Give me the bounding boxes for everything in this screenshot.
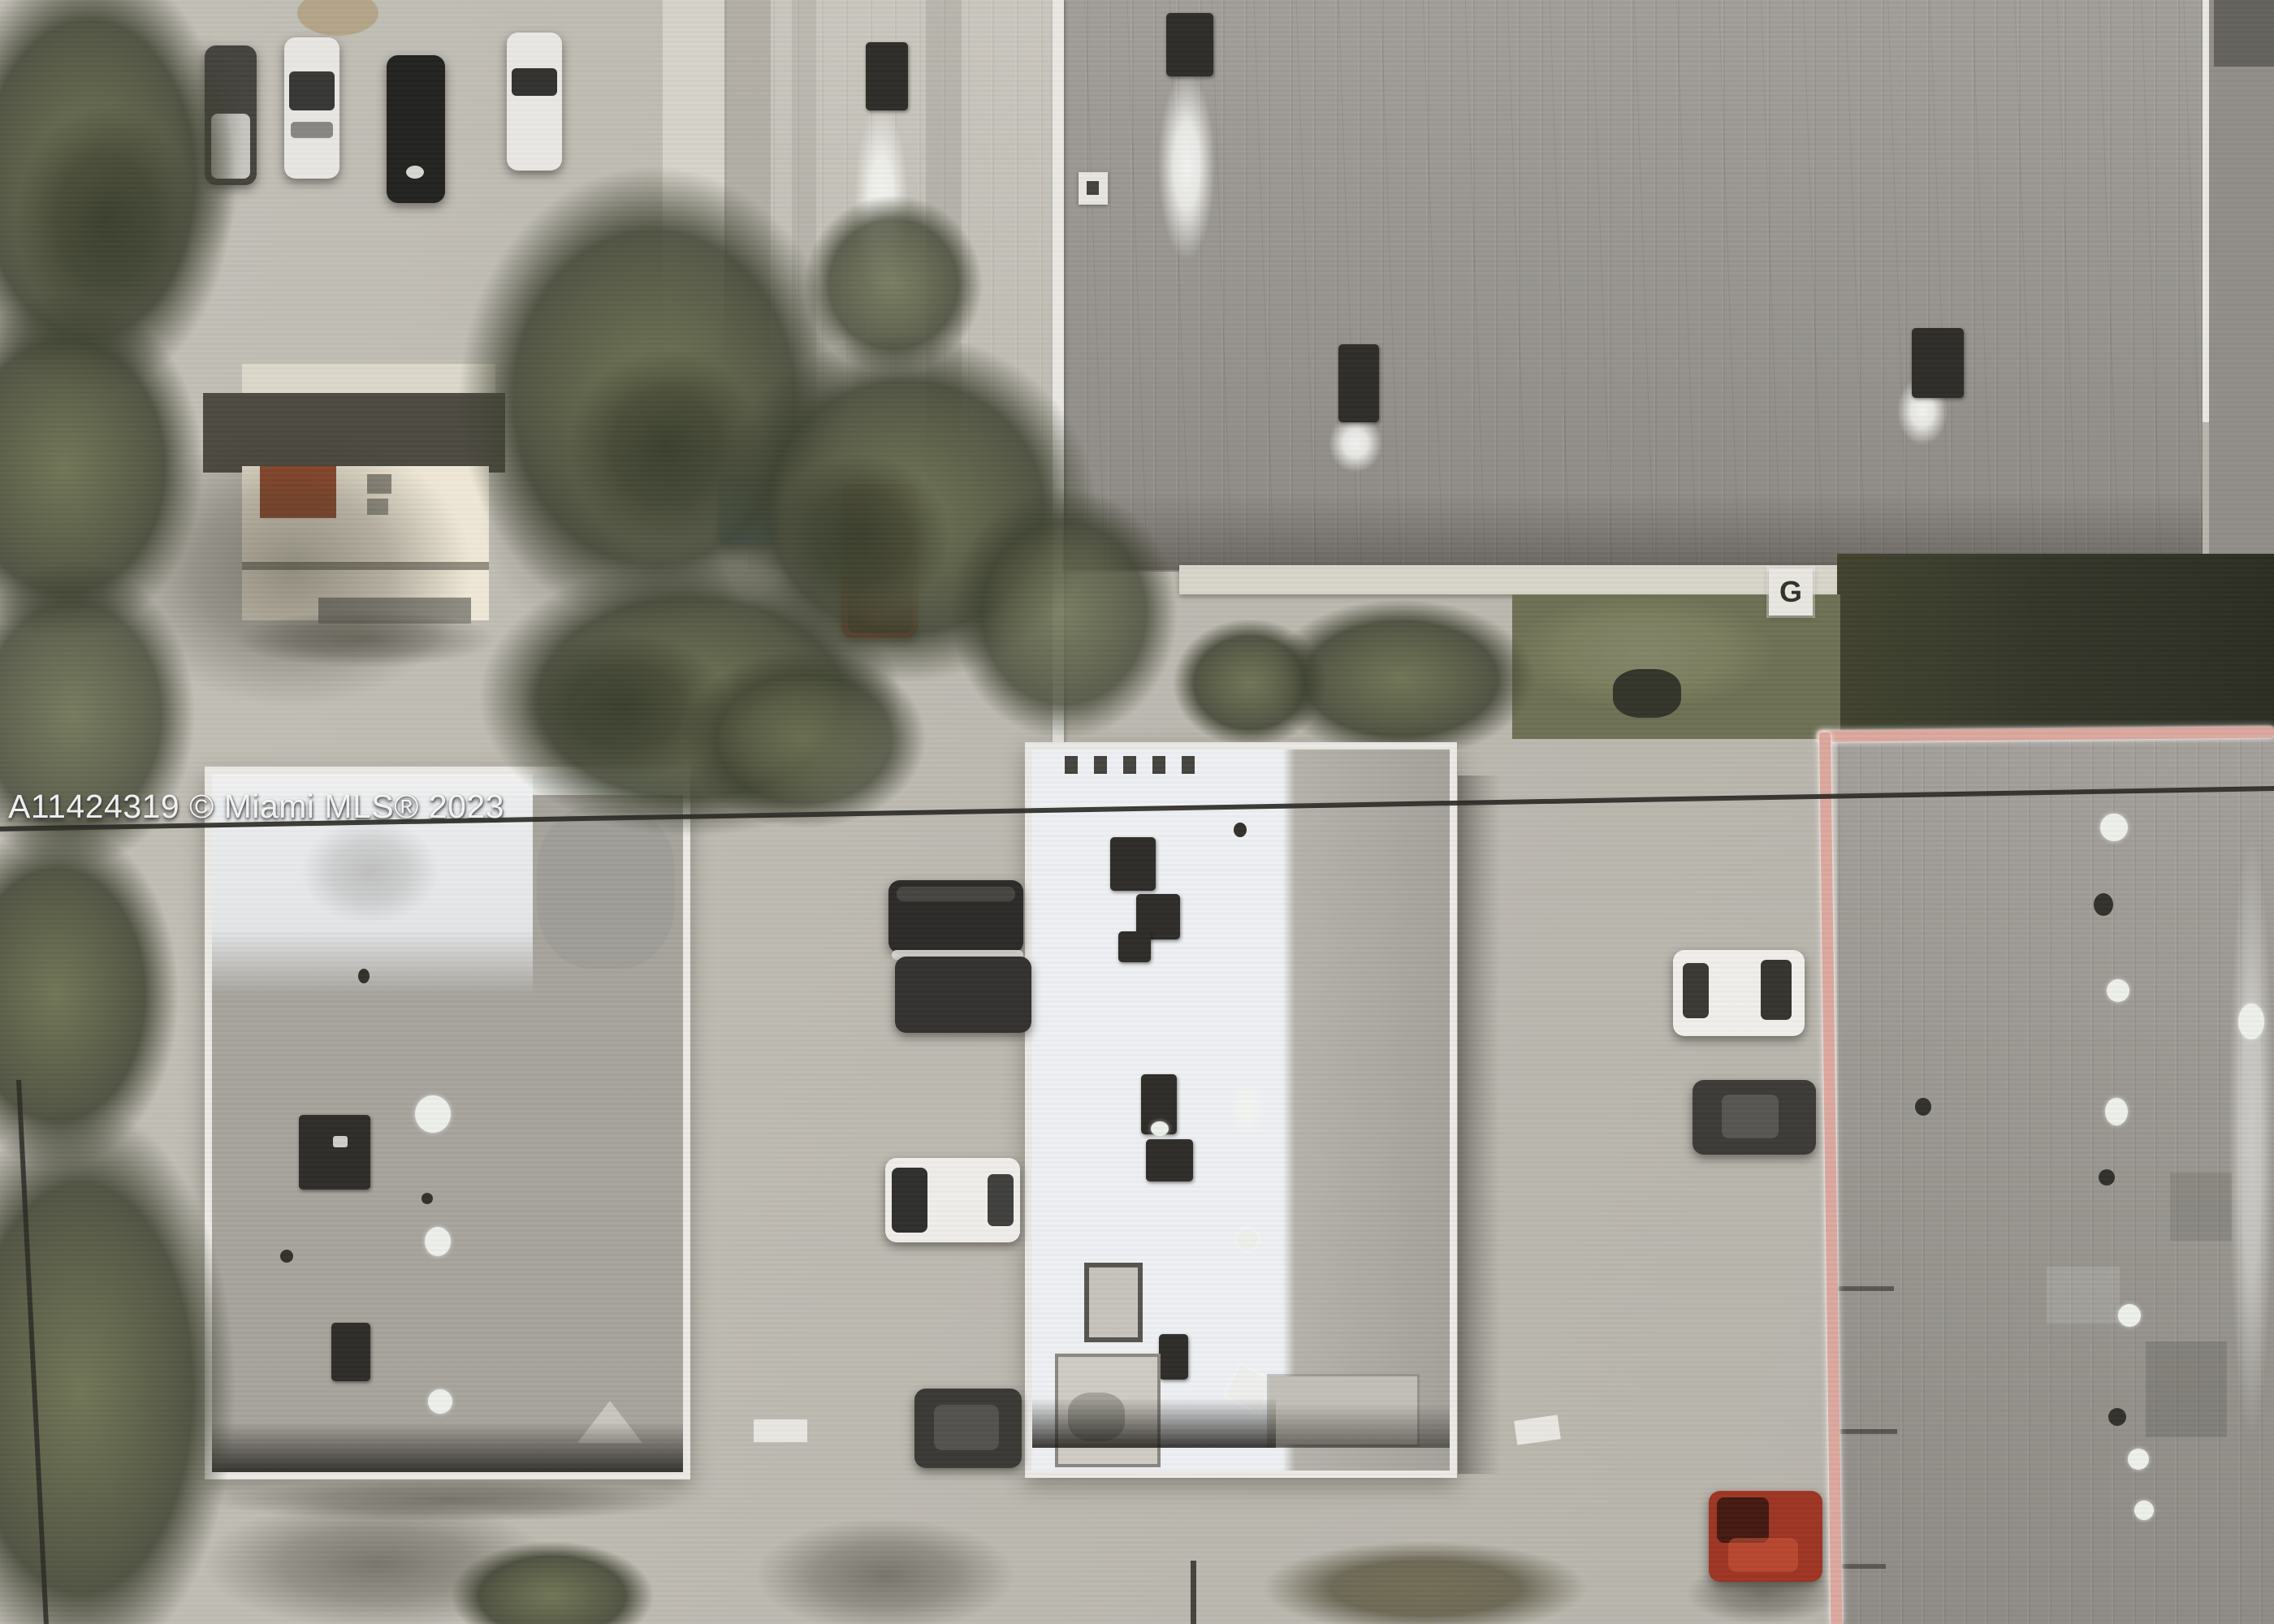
roof-vent-white (415, 1095, 451, 1133)
roof-vent-dark (1234, 823, 1247, 837)
roof-vent-white (428, 1389, 452, 1414)
vent-streak (1230, 1081, 1265, 1138)
parked-car-black (387, 55, 445, 203)
wall-sign-G: G (1769, 568, 1813, 615)
right-dark-car (1693, 1080, 1816, 1155)
roof-vent (1338, 344, 1379, 422)
ac-glint (333, 1136, 348, 1147)
car-body-sheen (1728, 1538, 1798, 1572)
roof-joint-tick (1837, 1564, 1886, 1569)
car-headlight-glint (406, 166, 424, 179)
roof-light-strip (2229, 836, 2274, 1437)
tree-shadow (755, 1518, 1015, 1624)
roof-edge-shadow (212, 1422, 683, 1472)
roof-patch-light (2047, 1267, 2120, 1324)
roof-vent-white (2134, 1501, 2154, 1520)
roof-vent-dark (1915, 1098, 1931, 1116)
roof-vent-white (2238, 1004, 2264, 1039)
building-middle (1025, 742, 1457, 1478)
roof-joint-tick (1837, 1286, 1894, 1291)
roof-ac-unit (331, 1323, 370, 1381)
mls-watermark: A11424319 © Miami MLS® 2023 (8, 788, 504, 825)
parked-car-white-suv (284, 37, 339, 179)
right-white-car (1673, 950, 1805, 1036)
roof-ac-unit (1159, 1334, 1188, 1380)
roof-vent-white (425, 1227, 451, 1256)
wall-sign-glyph: G (1779, 575, 1802, 609)
roof-vent (866, 42, 908, 110)
roof-right-edge-line (2203, 0, 2209, 422)
hedge (1837, 554, 2274, 737)
roof-vent-dark (2108, 1408, 2126, 1426)
gap-white-car (885, 1158, 1020, 1242)
roof-edge-shadow (1032, 1397, 1276, 1448)
car-windshield (512, 68, 557, 96)
car-windshield (892, 1168, 927, 1233)
roof-ac-cluster (299, 1115, 370, 1190)
roof-vent-white (2107, 979, 2129, 1002)
grass-area (1512, 594, 1840, 739)
pavement-mark-white (754, 1419, 807, 1442)
roof-vent-white (2105, 1098, 2128, 1125)
car-windshield (1761, 960, 1792, 1020)
roof-vent-dark (280, 1250, 293, 1263)
roof-patch (2146, 1341, 2227, 1437)
roof-edge-shadow (1276, 1404, 1450, 1448)
utility-pole (1191, 1561, 1196, 1624)
roof-ac-unit (1110, 837, 1156, 891)
roof-joint-tick (1837, 1429, 1897, 1434)
roof-vent-white (2100, 814, 2128, 841)
roof-skylight (1084, 1263, 1143, 1342)
dark-bush (1613, 669, 1681, 718)
roof-ac-unit (1118, 931, 1151, 962)
dirt-patch (297, 0, 378, 36)
roof-vent-dark (422, 1193, 433, 1204)
roof-vent-dark (2094, 893, 2113, 916)
car-rear-window (988, 1174, 1014, 1226)
tree-canopy-dark (16, 106, 195, 333)
roof-corner-shadow (2214, 0, 2274, 67)
suv-roof-line (897, 887, 1015, 901)
roof-vent-white (1151, 1121, 1169, 1136)
pavement-mark-white (1514, 1415, 1561, 1445)
warehouse-roof (1062, 0, 2203, 570)
tree-canopy-dark (772, 455, 950, 617)
car-roof-highlight (1722, 1095, 1779, 1138)
tree-canopy (950, 487, 1178, 739)
roof-ac-unit (1146, 1139, 1193, 1181)
car-windshield (1717, 1497, 1769, 1543)
gap-dark-car (914, 1389, 1022, 1468)
car-windshield (289, 71, 335, 110)
gap-suv-2 (895, 957, 1031, 1033)
parked-car-white (507, 32, 562, 171)
roof-vent-dark (358, 969, 370, 983)
vent-streak (1158, 71, 1215, 260)
roof-edge-ticks (1065, 756, 1211, 774)
roof-vent-dark (2099, 1169, 2115, 1186)
aerial-photo: G (0, 0, 2274, 1624)
roof-stain (301, 818, 439, 924)
car-rear-window (1683, 963, 1709, 1018)
building-left (205, 767, 690, 1479)
roof-vent-white (2118, 1304, 2141, 1327)
building-middle-side-shadow (1458, 775, 1500, 1474)
car-roof-highlight (934, 1405, 999, 1450)
warehouse-roof-right-strip (2209, 0, 2274, 564)
roof-vent-white (1237, 1229, 1258, 1250)
roof-vent-white (2128, 1449, 2149, 1470)
pavement-marker-glyph (1087, 181, 1099, 195)
roof-vent (1166, 13, 1213, 76)
tree-canopy-sparse (1263, 1541, 1588, 1624)
roof-vent (1912, 328, 1964, 398)
car-rear-window (291, 122, 333, 138)
shrubs (1173, 619, 1327, 747)
tree-canopy-dark (568, 349, 763, 544)
right-red-car (1709, 1491, 1822, 1582)
pavement-marker-sign (1079, 172, 1108, 205)
gap-suv-1 (888, 880, 1023, 953)
roof-patch (2170, 1173, 2232, 1241)
vent-streak (1329, 414, 1382, 473)
tree-canopy-dark (520, 633, 731, 780)
property-wall (1179, 565, 1839, 594)
